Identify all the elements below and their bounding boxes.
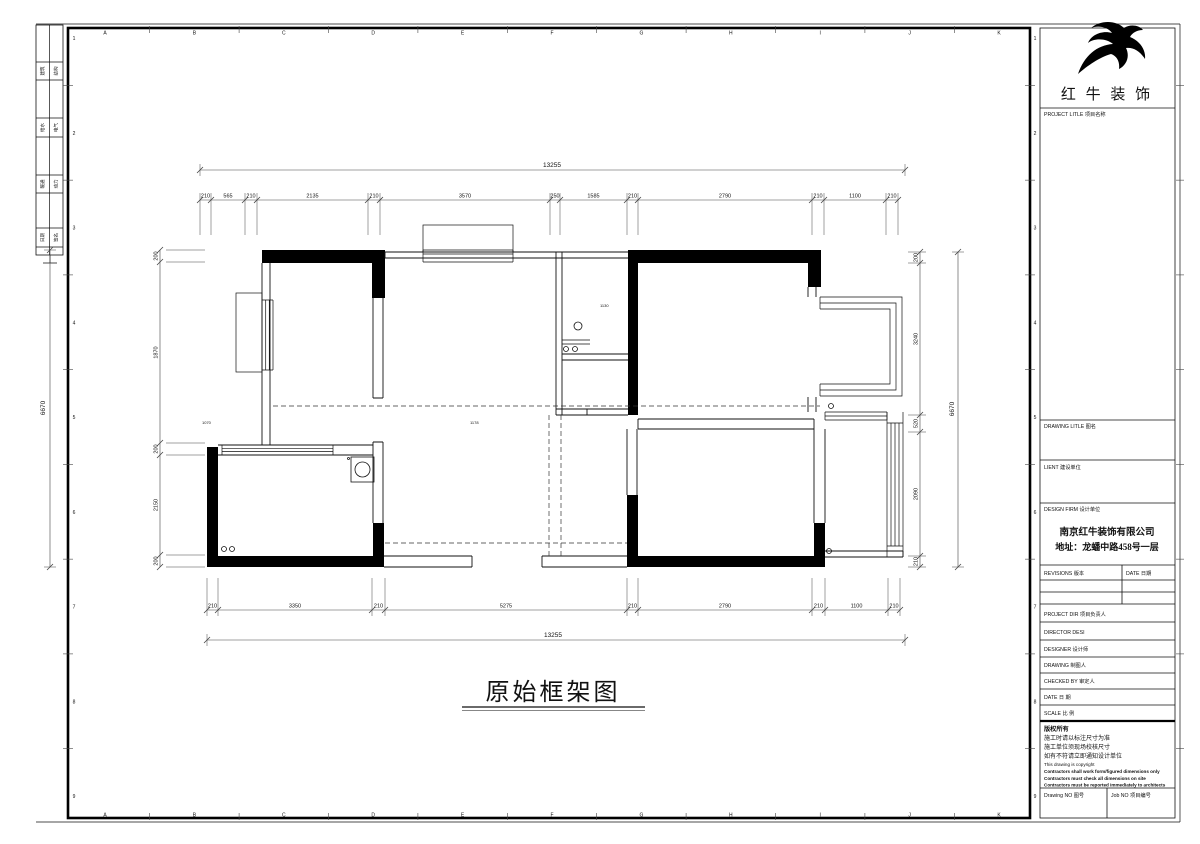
strip-label: 结构 [53, 66, 60, 75]
field-drawing-no: Drawing NO 图号 [1044, 792, 1084, 799]
dim-label: 200 [154, 556, 160, 565]
dim-label: 1100 [849, 194, 861, 200]
dim-label: 250 [550, 194, 559, 200]
dimension-totals: 13255 13255 6670 6670 [40, 162, 956, 639]
fixtures [222, 322, 834, 554]
grid-number: 1 [73, 36, 76, 42]
grid-letter: I [820, 31, 821, 37]
dim-label: 2090 [914, 488, 920, 500]
strip-label: 电气 [53, 123, 59, 132]
wall [628, 263, 638, 415]
grid-number: 1 [1034, 36, 1037, 42]
dim-label: 2790 [719, 194, 731, 200]
level-label: 1070 [202, 420, 212, 425]
grid-letter: I [820, 813, 821, 819]
field-design-firm: DESIGN FIRM 设计单位 [1044, 505, 1100, 513]
frame-rulers: AABBCCDDEEFFGGHHIIJJKK112233445566778899 [63, 26, 1184, 820]
level-label: 1178 [470, 420, 479, 425]
dim-total-right: 6670 [949, 401, 956, 416]
grid-number: 6 [1034, 510, 1037, 516]
grid-letter: H [729, 31, 733, 37]
balcony-ledge [236, 293, 262, 372]
signature-strip: 建筑结构给水电气暖通动力日期签名 [36, 25, 63, 263]
grid-letter: D [371, 31, 375, 37]
copyright-line: 施工单位须现场校核尺寸 [1044, 743, 1110, 751]
grid-number: 4 [1034, 320, 1037, 326]
drain-point [230, 547, 235, 552]
grid-letter: A [103, 31, 107, 37]
beam-dashed-lines [273, 406, 820, 556]
field-revisions: REVISIONS 版本 [1044, 569, 1084, 577]
dim-label: 210 [208, 604, 217, 610]
grid-letter: H [729, 813, 733, 819]
field-job-no: Job NO 项目编号 [1111, 791, 1151, 799]
wall [372, 250, 385, 298]
grid-number: 6 [73, 510, 76, 516]
wall [207, 447, 218, 567]
dim-label: 1585 [587, 194, 599, 200]
dim-label: 200 [154, 251, 160, 260]
field-director: DIRECTOR DESI [1044, 630, 1085, 636]
dim-label: 210 [887, 194, 896, 200]
dim-label: 5275 [500, 604, 512, 610]
wall [262, 250, 385, 263]
dim-label: 210 [201, 194, 210, 200]
firm-address: 地址：龙蟠中路458号一层 [1055, 541, 1159, 552]
grid-number: 9 [1034, 794, 1037, 800]
dim-label: 2790 [719, 604, 731, 610]
plan-caption: 原始框架图 [462, 679, 645, 711]
strip-label: 暖通 [39, 179, 46, 188]
grid-letter: F [550, 813, 553, 819]
window-top-left [262, 300, 273, 370]
kitchen-counter [562, 340, 590, 344]
dim-label: 565 [223, 194, 232, 200]
dim-label: 210 [889, 604, 898, 610]
floor-plan: 1130 1178 1070 [202, 225, 903, 567]
grid-number: 3 [1034, 226, 1037, 232]
window-inner-balcony [222, 445, 333, 455]
dim-label: 210 [628, 194, 637, 200]
field-date-col: DATE 日期 [1126, 570, 1151, 577]
grid-number: 7 [73, 605, 76, 611]
field-date: DATE 日 期 [1044, 694, 1071, 701]
plan-title: 原始框架图 [486, 679, 621, 706]
wall [627, 556, 825, 567]
title-block: 红 牛 装 饰 PROJECT LITLE 项目名称 DRAWING LITLE… [1040, 22, 1175, 818]
wall [373, 523, 384, 567]
bay-window [820, 297, 902, 396]
field-designer: DESIGNER 设计师 [1044, 645, 1088, 653]
dim-label: 210 [374, 604, 383, 610]
grid-letter: C [282, 31, 286, 37]
dim-label: 3570 [459, 194, 471, 200]
grid-letter: G [639, 31, 643, 37]
dim-label: 1100 [851, 604, 863, 610]
grid-number: 5 [73, 415, 76, 421]
grid-number: 4 [73, 320, 76, 326]
field-project-dir: PROJECT DIR 项目负责人 [1044, 610, 1106, 618]
grid-number: 8 [73, 699, 76, 705]
sink-tap [573, 347, 578, 352]
dim-label: 2135 [306, 194, 318, 200]
window-balcony-top [825, 412, 887, 420]
copyright-line: This drawing is copyright [1044, 762, 1095, 767]
windows [222, 225, 903, 557]
wall [814, 523, 825, 567]
grid-letter: F [550, 31, 553, 37]
dim-label: 3350 [289, 604, 301, 610]
grid-letter: E [461, 31, 465, 37]
copyright-line: 如有不符请立即通知设计单位 [1044, 752, 1122, 760]
wall [808, 250, 821, 287]
grid-number: 2 [73, 131, 76, 137]
grid-number: 3 [73, 226, 76, 232]
copyright-line: 版权所有 [1043, 725, 1069, 733]
grid-number: 9 [73, 794, 76, 800]
dim-label: 200 [154, 444, 160, 453]
dim-label: 2150 [154, 499, 160, 511]
strip-label: 动力 [53, 179, 60, 188]
level-label: 1130 [600, 303, 609, 308]
wall [628, 250, 821, 263]
partition-walls [218, 252, 903, 567]
copyright-line: Contractors must check all dimensions on… [1044, 776, 1146, 781]
strip-label: 给水 [39, 123, 46, 132]
brand-name: 红 牛 装 饰 [1061, 86, 1153, 103]
sink-tap [564, 347, 569, 352]
valve-dot [348, 458, 350, 460]
grid-letter: K [997, 31, 1001, 37]
strip-label: 日期 [40, 233, 46, 242]
dimensions: 2105652102135210357025015852102790210110… [44, 164, 964, 646]
drain-point [829, 404, 834, 409]
strip-label: 建筑 [39, 66, 46, 75]
window-balcony-right [887, 412, 903, 557]
firm-name: 南京红牛装饰有限公司 [1059, 526, 1154, 538]
structural-walls [207, 250, 825, 567]
washing-machine-drum [355, 462, 370, 477]
dim-label: 210 [246, 194, 255, 200]
copyright-line: 施工时请以标注尺寸为准 [1044, 734, 1110, 742]
grid-letter: G [639, 813, 643, 819]
copyright-line: Contractors shall work form/figured dime… [1044, 769, 1160, 774]
dim-label: 210 [628, 604, 637, 610]
grid-number: 8 [1034, 699, 1037, 705]
copyright-line: Contractors must be reported immediately… [1044, 783, 1166, 788]
dim-label: 210 [813, 194, 822, 200]
dim-label: 210 [914, 557, 920, 566]
grid-number: 2 [1034, 131, 1037, 137]
field-drawing-by: DRAWING 制图人 [1044, 661, 1086, 669]
grid-letter: J [908, 31, 911, 37]
grid-letter: C [282, 813, 286, 819]
field-client: LIENT 建设单位 [1044, 463, 1081, 471]
field-drawing-title: DRAWING LITLE 图名 [1044, 422, 1096, 430]
dim-label: 520 [914, 419, 920, 428]
dim-total-left: 6670 [40, 400, 47, 415]
drawing-sheet: 建筑结构给水电气暖通动力日期签名 [0, 0, 1200, 844]
drain-point [222, 547, 227, 552]
dim-label: 210 [814, 604, 823, 610]
brand-logo-bull-icon [1078, 22, 1145, 74]
grid-number: 5 [1034, 415, 1037, 421]
dim-total-top: 13255 [543, 162, 561, 169]
grid-letter: B [193, 31, 197, 37]
dim-label: 1870 [154, 346, 160, 358]
strip-label: 签名 [53, 233, 60, 242]
grid-number: 7 [1034, 605, 1037, 611]
dim-total-bottom: 13255 [544, 632, 562, 639]
field-project-title: PROJECT LITLE 项目名称 [1044, 110, 1106, 118]
gas-meter [574, 322, 582, 330]
dim-label: 210 [369, 194, 378, 200]
dim-label: 3240 [914, 333, 920, 345]
flower-bed [423, 225, 513, 252]
field-checked-by: CHECKED BY 审定人 [1044, 677, 1095, 685]
washing-machine [351, 457, 374, 482]
field-scale: SCALE 比 例 [1044, 709, 1074, 717]
grid-letter: D [371, 813, 375, 819]
dim-label: 200 [914, 253, 920, 262]
wall [207, 556, 384, 567]
